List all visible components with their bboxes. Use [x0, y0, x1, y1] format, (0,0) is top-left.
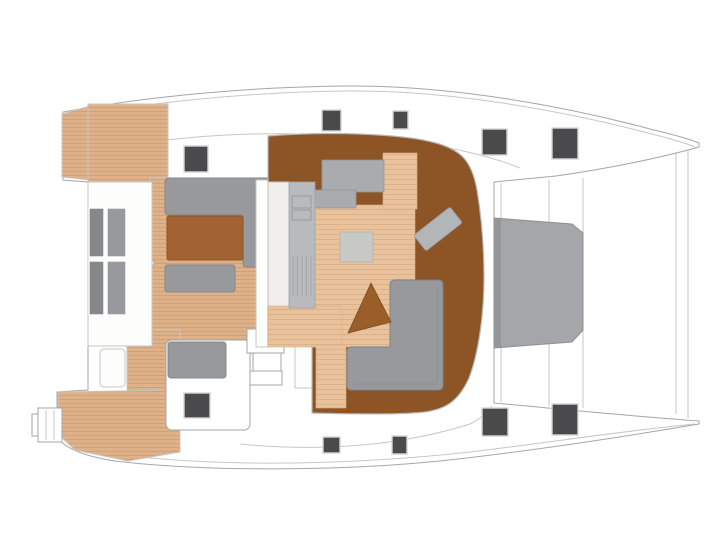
helm-seat-pad	[168, 342, 226, 378]
cockpit-table	[167, 216, 243, 260]
saloon-floor-tan-top	[383, 153, 417, 209]
cockpit-bench-port	[88, 182, 152, 346]
bench-cushions	[89, 208, 126, 315]
deck-hatch	[482, 408, 508, 436]
cockpit-bench	[165, 265, 235, 292]
bench-cushion	[89, 208, 104, 257]
swim-ladder	[32, 408, 62, 442]
deck-hatch	[552, 128, 578, 159]
deck-hatch	[184, 146, 208, 172]
bench-cushion	[89, 261, 104, 315]
dinette-seat-upper	[322, 160, 384, 192]
deck-hatch	[323, 437, 340, 453]
deck-hatch	[552, 404, 578, 435]
foredeck-trampoline	[494, 218, 583, 348]
helm-instrument-panel	[184, 393, 210, 418]
deck-hatch	[392, 436, 407, 454]
cockpit-teak-upper	[88, 104, 168, 182]
saloon-floor-tan-strip	[316, 345, 346, 408]
saloon-sliding-door	[256, 180, 268, 347]
deck-hatch	[322, 110, 341, 131]
saloon-table	[340, 232, 373, 262]
starboard-transom-teak	[58, 390, 180, 461]
bench-cushion	[107, 261, 126, 315]
deck-locker	[100, 349, 125, 387]
deck-hatch	[482, 129, 507, 155]
dinette-seat-lower	[312, 190, 356, 208]
saloon-floor-tan-left	[268, 306, 342, 347]
bench-cushion	[107, 208, 126, 257]
deck-hatch	[393, 111, 408, 129]
boat-floorplan-canvas	[0, 0, 728, 546]
transom-platform	[62, 106, 90, 180]
galley-cabinet	[268, 182, 290, 310]
galley-counter	[289, 182, 315, 308]
catamaran-deck-plan	[0, 0, 728, 546]
helm-instrument-panel	[184, 393, 210, 418]
